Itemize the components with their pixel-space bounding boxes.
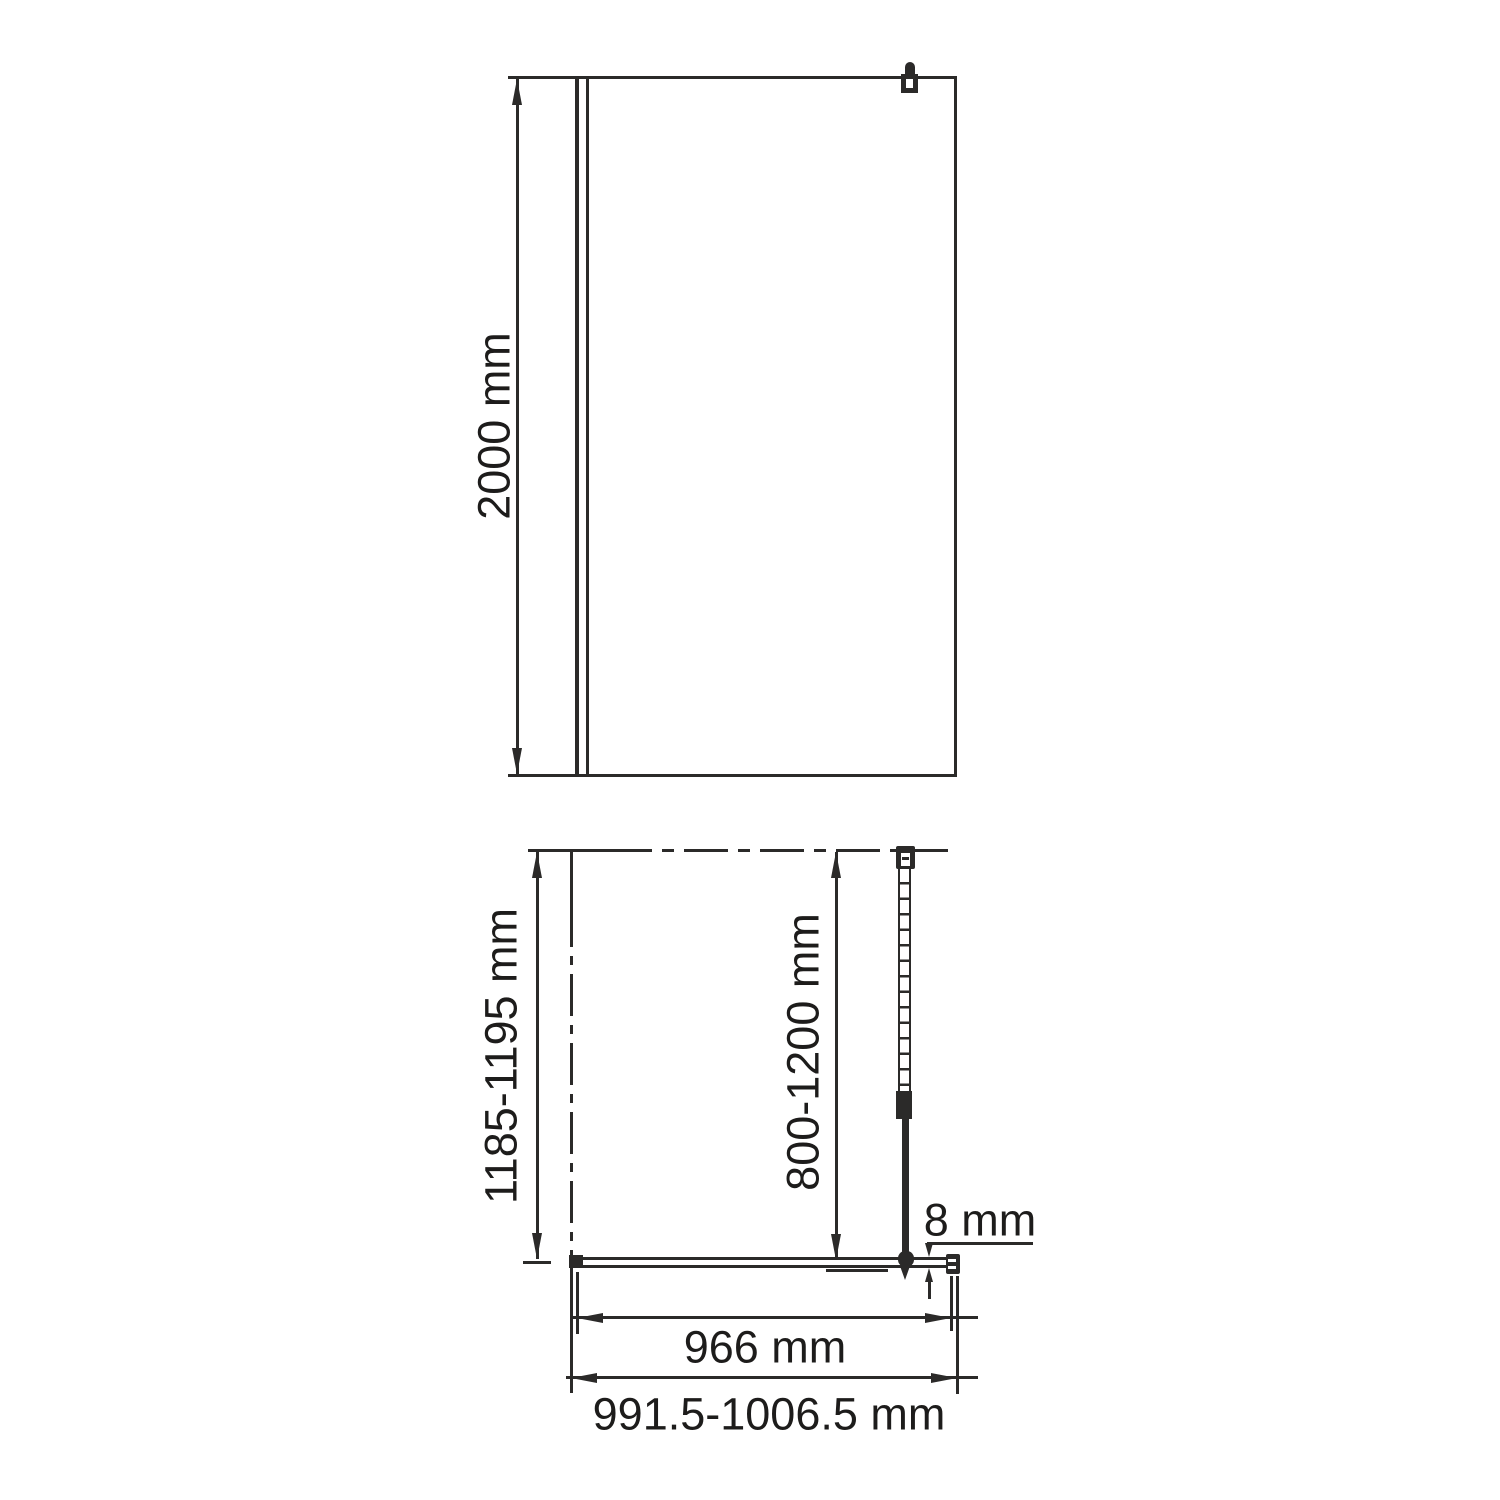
arrow-right-icon — [925, 1313, 951, 1323]
arrow-up-icon — [831, 852, 841, 878]
wall-profile-end-cap — [569, 1255, 583, 1268]
depth-dimension-label: 1185-1195 mm — [479, 908, 524, 1204]
arrow-right-icon — [931, 1373, 957, 1383]
arrow-left-icon — [571, 1373, 597, 1383]
support-bar-telescopic-section — [898, 869, 911, 1091]
support-bar-rod — [902, 1119, 909, 1257]
wall-profile-outer-line — [575, 76, 579, 777]
glass-top-face — [583, 1257, 948, 1260]
arrow-up-icon — [925, 1268, 933, 1282]
panel-right-edge — [954, 76, 957, 777]
thickness-arrow-tail — [928, 1282, 931, 1299]
side-wall-dashdot-line — [570, 905, 573, 1270]
support-bar-joint-sleeve — [896, 1091, 912, 1119]
glass-width-dimension-line — [571, 1316, 978, 1319]
glass-width-left-extension — [576, 1272, 579, 1334]
arrow-up-icon — [532, 852, 542, 878]
glass-width-label: 966 mm — [684, 1325, 847, 1370]
arrow-down-icon — [512, 748, 522, 774]
height-dimension-label: 2000 mm — [472, 332, 517, 520]
technical-drawing-shower-panel: 2000 mm 1185-1195 mm 800-1200 mm — [0, 0, 1500, 1500]
overall-width-dimension-line — [566, 1376, 978, 1379]
arrow-left-icon — [577, 1313, 603, 1323]
depth-dimension-bottom-tick — [523, 1261, 551, 1264]
arrow-up-icon — [512, 79, 522, 105]
glass-thickness-label: 8 mm — [924, 1198, 1037, 1243]
arrow-down-icon — [532, 1233, 542, 1259]
support-dimension-bottom-tick — [826, 1269, 888, 1272]
support-arm-dimension-label: 800-1200 mm — [781, 913, 826, 1191]
depth-dimension-line — [536, 852, 539, 1259]
glass-width-right-extension — [950, 1276, 953, 1331]
wall-profile-inner-line — [586, 76, 589, 777]
side-wall-line-solid-lead — [570, 849, 573, 905]
glass-bottom-face — [583, 1265, 948, 1268]
overall-width-label: 991.5-1006.5 mm — [593, 1392, 946, 1437]
support-dimension-line — [835, 852, 838, 1260]
